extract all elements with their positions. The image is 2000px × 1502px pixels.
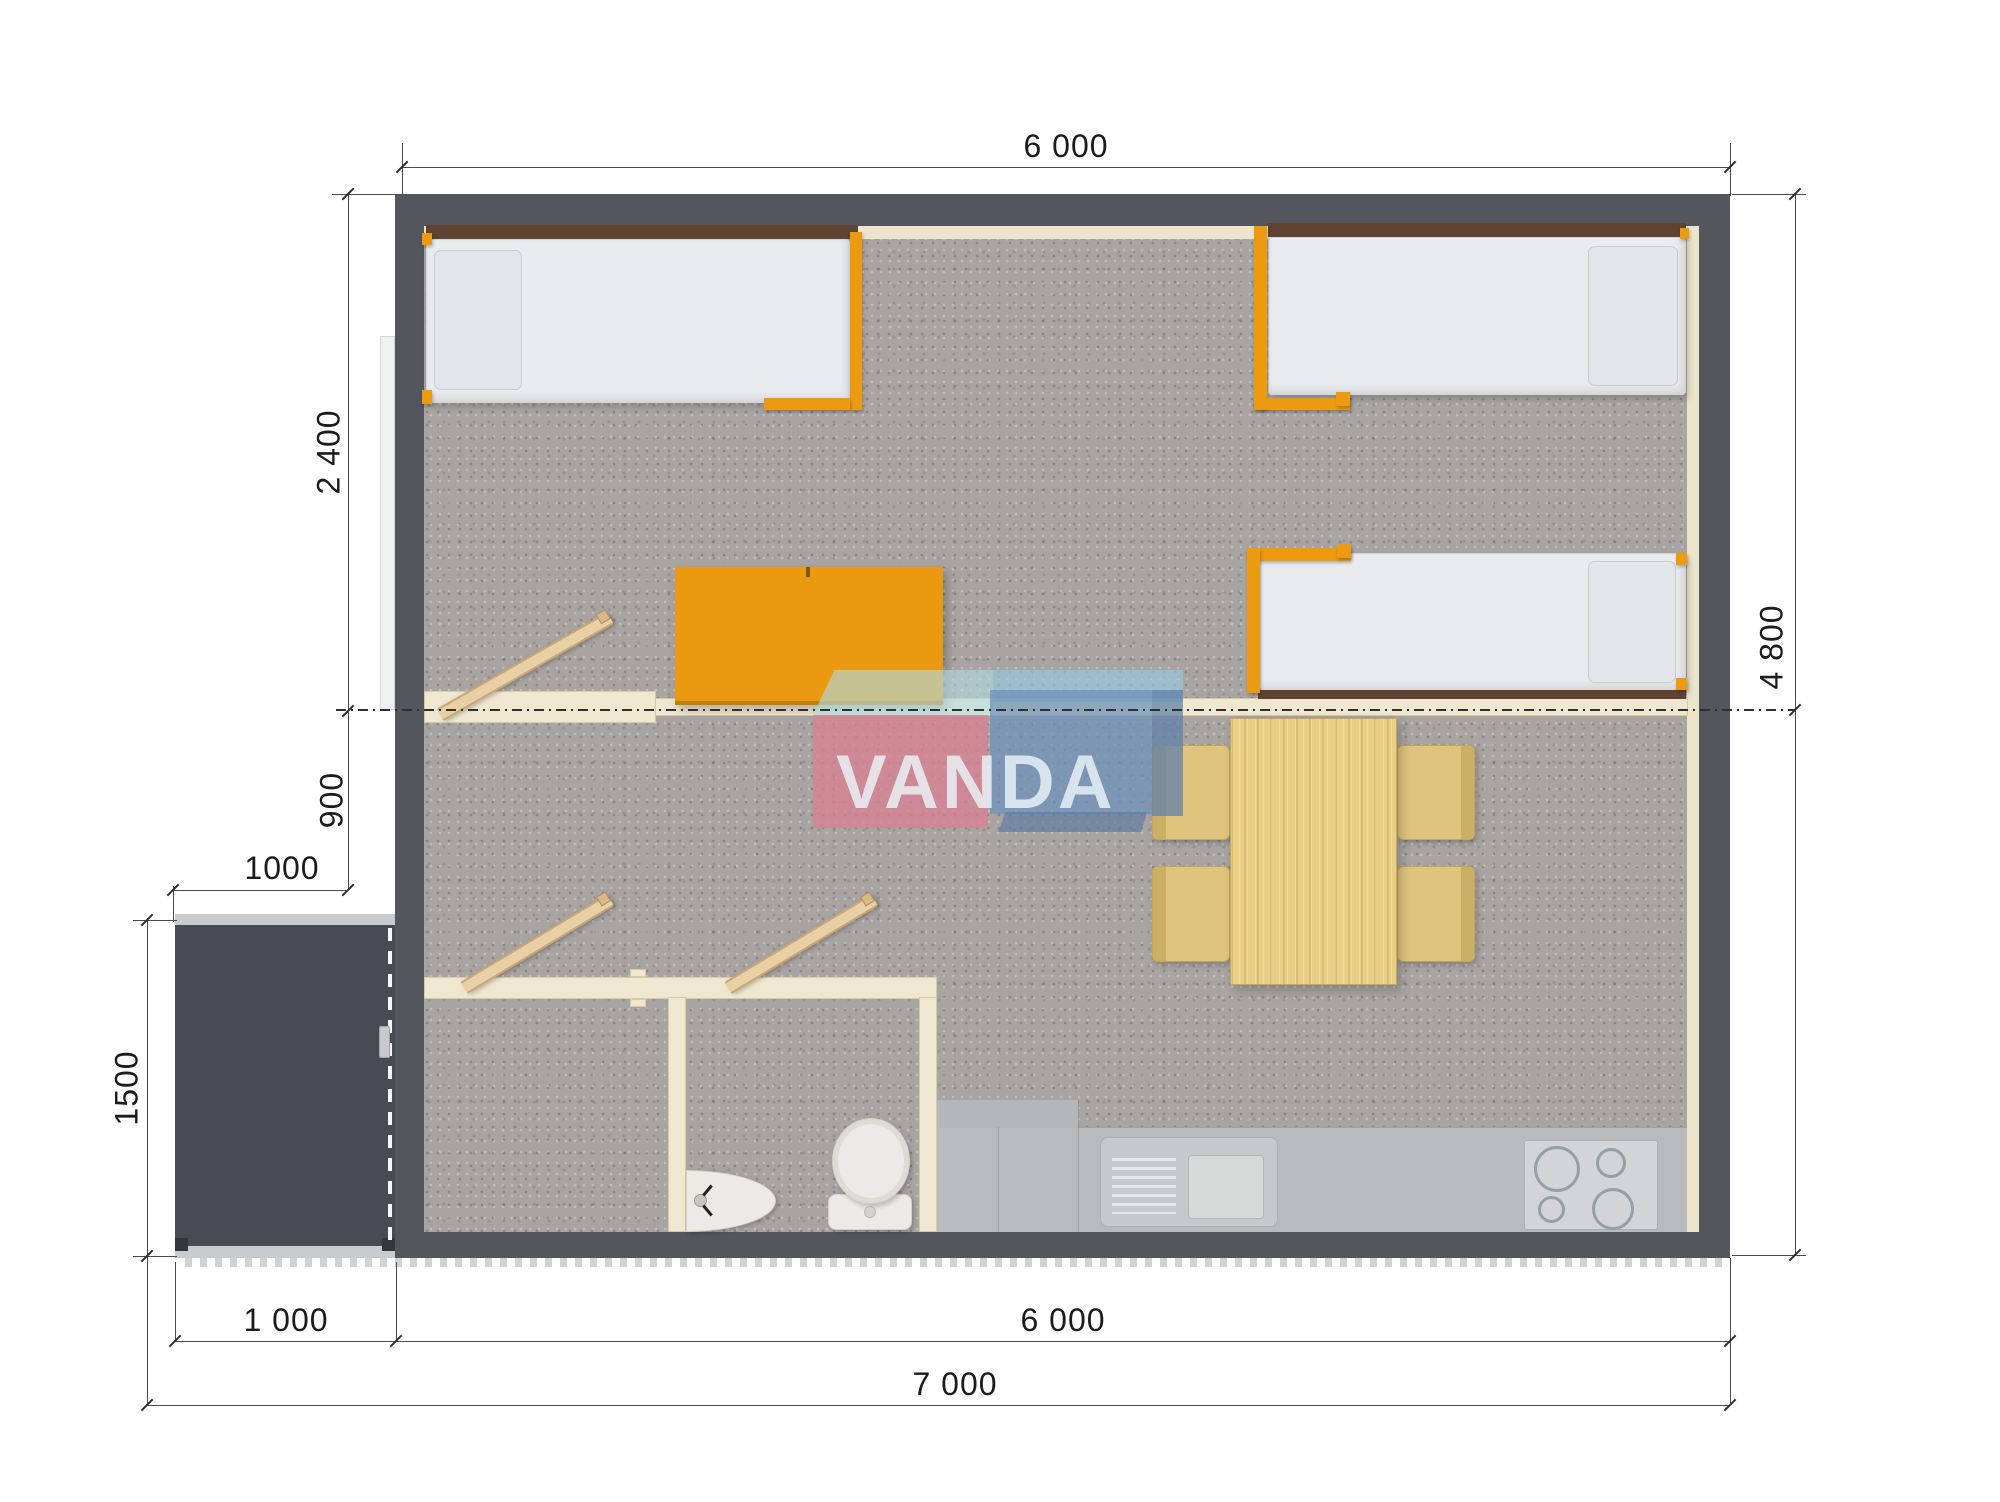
dim-line-bottom-2 bbox=[147, 1405, 1730, 1406]
bed-frame-foot bbox=[1676, 678, 1687, 690]
stove-burner bbox=[1596, 1148, 1626, 1178]
sink-basin bbox=[1188, 1155, 1264, 1219]
bed-pillow bbox=[1588, 561, 1676, 683]
wall-trim-right bbox=[1687, 232, 1699, 1232]
bed-headboard bbox=[1268, 223, 1686, 237]
porch-edge-bottom bbox=[175, 1246, 395, 1258]
toilet-flush-button bbox=[864, 1206, 876, 1218]
bed-frame-bracket bbox=[764, 398, 850, 410]
bathroom-wall-top bbox=[424, 977, 937, 999]
dining-table bbox=[1230, 718, 1397, 985]
desk-notch bbox=[806, 567, 810, 577]
bed-frame-foot bbox=[1680, 228, 1689, 239]
porch-edge-top bbox=[175, 914, 395, 925]
bed-headboard bbox=[426, 225, 858, 239]
dim-ext bbox=[173, 886, 174, 922]
counter-seam bbox=[1078, 1100, 1079, 1232]
dim-label-porch-width-top: 1000 bbox=[244, 850, 319, 887]
dim-ext bbox=[402, 143, 403, 196]
bathroom-wall-right bbox=[919, 997, 937, 1232]
bed-pillow bbox=[1588, 246, 1678, 386]
dim-ext bbox=[332, 194, 402, 195]
bathroom-wall-divider bbox=[668, 997, 686, 1232]
bed-frame-foot bbox=[422, 390, 432, 404]
dim-line-porch-depth bbox=[147, 918, 148, 1258]
dim-ext bbox=[175, 1262, 176, 1341]
door-handle bbox=[379, 1026, 390, 1058]
bathroom-door-jamb bbox=[630, 999, 646, 1007]
bed-frame-bar bbox=[850, 232, 862, 410]
reference-dashed-line bbox=[336, 709, 1795, 711]
chair bbox=[1152, 866, 1230, 962]
dim-ext bbox=[133, 1256, 177, 1257]
chair bbox=[1397, 745, 1475, 840]
dim-ext bbox=[1730, 1258, 1731, 1405]
sink-drainboard bbox=[1112, 1158, 1176, 1214]
window-left-wall bbox=[380, 336, 395, 710]
wall-left bbox=[395, 194, 424, 1258]
dim-label-total-width: 7 000 bbox=[912, 1366, 997, 1403]
counter-seam bbox=[998, 1127, 999, 1232]
bed-frame-foot bbox=[1336, 392, 1350, 406]
stove-burner bbox=[1538, 1196, 1565, 1223]
dim-ext bbox=[1730, 143, 1731, 196]
bed-frame-bracket bbox=[1247, 548, 1351, 561]
dim-line-porch-top bbox=[173, 890, 348, 891]
stove-burner bbox=[1592, 1188, 1634, 1230]
kitchen-counter-block bbox=[937, 1100, 1078, 1128]
bed-frame-foot bbox=[1676, 553, 1687, 565]
wall-right bbox=[1699, 194, 1730, 1258]
dim-ext bbox=[133, 920, 177, 921]
dim-label-top-width: 6 000 bbox=[1023, 128, 1108, 165]
dim-line-bottom-1 bbox=[175, 1341, 1730, 1342]
chair bbox=[1397, 866, 1475, 962]
chair-backrest bbox=[1461, 746, 1474, 839]
bed-frame-foot bbox=[1337, 544, 1351, 558]
dim-label-bedroom-depth: 2 400 bbox=[311, 409, 348, 494]
dim-label-house-width-bottom: 6 000 bbox=[1020, 1302, 1105, 1339]
bed-frame-foot bbox=[422, 233, 432, 245]
bed-footboard bbox=[1258, 690, 1686, 699]
bed-pillow bbox=[434, 250, 522, 390]
vanda-watermark: VANDA bbox=[780, 655, 1190, 850]
dim-line-right bbox=[1795, 194, 1796, 1256]
sliding-door bbox=[388, 928, 392, 1246]
dim-label-porch-depth: 1500 bbox=[109, 1050, 146, 1125]
logo-text: VANDA bbox=[836, 739, 1116, 826]
dim-label-porch-width-bottom: 1 000 bbox=[243, 1302, 328, 1339]
porch-post bbox=[175, 1238, 188, 1251]
dim-label-house-depth: 4 800 bbox=[1754, 604, 1791, 689]
wall-top bbox=[395, 194, 1730, 226]
bed-frame-bar bbox=[1247, 548, 1260, 693]
floor-plan: VANDA 6 000 2 400 900 1000 1500 4 800 1 … bbox=[0, 0, 2000, 1502]
dim-ext bbox=[147, 1258, 148, 1405]
porch-deck bbox=[175, 920, 395, 1258]
toilet-bowl bbox=[832, 1118, 910, 1204]
bathroom-door-jamb bbox=[630, 969, 646, 977]
deck-edge-ticks bbox=[177, 1258, 1730, 1267]
chair-backrest bbox=[1461, 867, 1474, 961]
wall-bottom bbox=[395, 1232, 1730, 1258]
chair-backrest bbox=[1153, 867, 1166, 961]
bed-frame-bar bbox=[1254, 226, 1267, 410]
dim-line-top bbox=[402, 167, 1730, 168]
stove-burner bbox=[1534, 1146, 1580, 1192]
dim-ext bbox=[396, 1262, 397, 1341]
dim-label-hall-depth: 900 bbox=[314, 772, 351, 828]
